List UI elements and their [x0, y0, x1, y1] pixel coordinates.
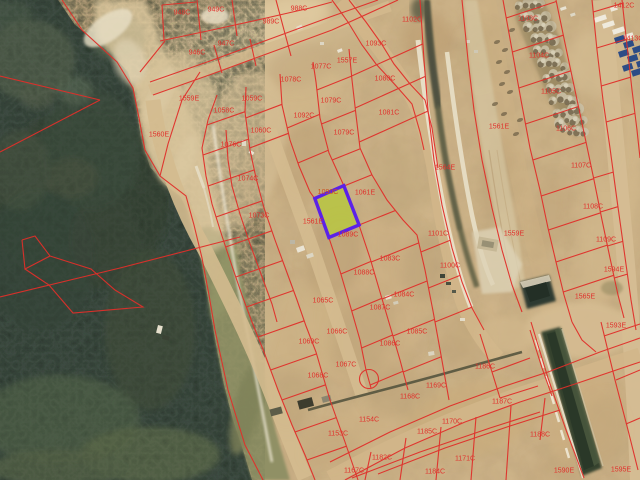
svg-text:1081C: 1081C	[379, 110, 400, 117]
svg-text:1104C: 1104C	[529, 53, 549, 60]
svg-text:1171C: 1171C	[455, 456, 475, 463]
svg-text:1109C: 1109C	[596, 237, 616, 244]
svg-text:1077C: 1077C	[311, 64, 332, 71]
svg-text:989C: 989C	[263, 19, 280, 26]
svg-text:1078C: 1078C	[281, 77, 302, 84]
svg-text:1565E: 1565E	[575, 294, 596, 301]
svg-text:1412C: 1412C	[614, 3, 635, 10]
svg-text:1058C: 1058C	[214, 108, 235, 115]
svg-text:1561E: 1561E	[303, 219, 324, 226]
svg-text:1090C: 1090C	[318, 189, 339, 196]
svg-text:1106C: 1106C	[556, 126, 576, 133]
svg-text:1103C: 1103C	[518, 16, 538, 23]
svg-text:1079C: 1079C	[334, 130, 355, 137]
svg-text:1061E: 1061E	[355, 190, 376, 197]
svg-text:1084C: 1084C	[394, 292, 415, 299]
svg-text:948C: 948C	[174, 10, 191, 17]
svg-text:1561E: 1561E	[489, 124, 510, 131]
svg-text:1595E: 1595E	[611, 467, 632, 474]
svg-text:1059C: 1059C	[242, 96, 263, 103]
svg-text:988C: 988C	[291, 6, 308, 13]
svg-text:1068C: 1068C	[308, 373, 329, 380]
svg-text:1092C: 1092C	[294, 113, 315, 120]
svg-text:1185C: 1185C	[417, 429, 437, 436]
svg-text:1594E: 1594E	[604, 267, 625, 274]
svg-text:1184C: 1184C	[425, 469, 445, 476]
svg-text:1168C: 1168C	[400, 394, 420, 401]
svg-text:1559E: 1559E	[179, 96, 200, 103]
svg-text:1065C: 1065C	[313, 298, 334, 305]
svg-text:1089C: 1089C	[338, 232, 359, 239]
svg-text:1102C: 1102C	[402, 17, 422, 24]
svg-text:1170C: 1170C	[442, 419, 462, 426]
svg-text:1067C: 1067C	[336, 362, 357, 369]
svg-text:1087C: 1087C	[370, 305, 391, 312]
svg-text:1186C: 1186C	[475, 364, 495, 371]
svg-text:1153C: 1153C	[328, 431, 348, 438]
svg-text:1101C: 1101C	[428, 231, 448, 238]
svg-text:1100C: 1100C	[440, 263, 460, 270]
svg-text:1559E: 1559E	[504, 231, 525, 238]
svg-text:1560E: 1560E	[149, 132, 170, 139]
svg-text:1593E: 1593E	[606, 323, 627, 330]
svg-text:1074C: 1074C	[238, 176, 259, 183]
svg-text:947C: 947C	[218, 41, 235, 48]
svg-text:1080C: 1080C	[375, 76, 396, 83]
svg-text:1564E: 1564E	[435, 165, 456, 172]
svg-text:1105C: 1105C	[541, 89, 561, 96]
svg-text:1108C: 1108C	[583, 204, 603, 211]
svg-text:1093C: 1093C	[366, 41, 387, 48]
svg-text:1169C: 1169C	[426, 383, 446, 390]
svg-text:946C: 946C	[189, 50, 206, 57]
svg-text:1083C: 1083C	[380, 256, 401, 263]
svg-text:1413C: 1413C	[623, 36, 640, 43]
svg-text:1079C: 1079C	[321, 98, 342, 105]
svg-text:1086C: 1086C	[380, 341, 401, 348]
svg-text:1188C: 1188C	[530, 432, 550, 439]
svg-text:1182C: 1182C	[372, 455, 392, 462]
svg-text:1069C: 1069C	[299, 339, 320, 346]
svg-text:1060C: 1060C	[251, 128, 272, 135]
svg-text:1154C: 1154C	[359, 417, 379, 424]
svg-text:1085C: 1085C	[407, 329, 428, 336]
svg-text:1557E: 1557E	[337, 58, 358, 65]
svg-text:1590E: 1590E	[554, 468, 575, 475]
svg-text:1107C: 1107C	[571, 163, 591, 170]
svg-text:949C: 949C	[208, 7, 225, 14]
svg-text:1073C: 1073C	[249, 213, 270, 220]
svg-text:1187C: 1187C	[492, 399, 512, 406]
svg-text:1076C: 1076C	[221, 142, 242, 149]
svg-text:1167C: 1167C	[344, 468, 364, 475]
svg-text:1066C: 1066C	[327, 329, 348, 336]
svg-text:1088C: 1088C	[354, 270, 375, 277]
